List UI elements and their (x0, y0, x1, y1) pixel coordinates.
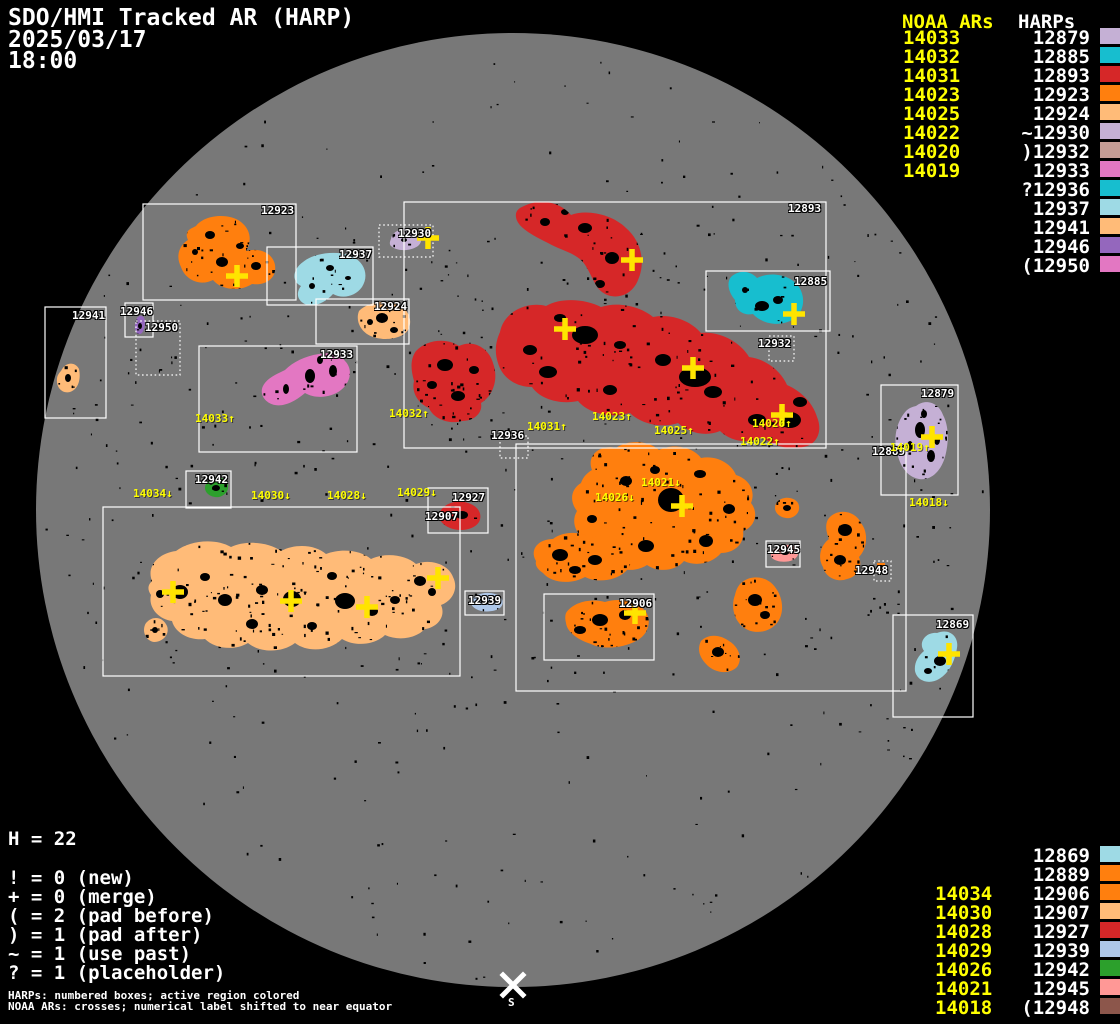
solar-disk (36, 33, 990, 987)
legend-swatch-12879 (1100, 28, 1120, 44)
harp-box-label-12930: 12930 (398, 227, 431, 240)
legend-swatch-12942 (1100, 960, 1120, 976)
noaa-ar-label-14018: 14018↓ (909, 496, 949, 509)
noaa-ar-label-14028: 14028↓ (327, 489, 367, 502)
legend-swatch-12933 (1100, 161, 1120, 177)
legend-swatch-12939 (1100, 941, 1120, 957)
legend-noaa-14019: 14019 (903, 160, 960, 182)
harp-box-label-12893: 12893 (788, 202, 821, 215)
legend-swatch-12948 (1100, 998, 1120, 1014)
harp-box-label-12927: 12927 (452, 491, 485, 504)
plot-time: 18:00 (8, 48, 77, 74)
legend-swatch-12889 (1100, 865, 1120, 881)
south-pole-label: S (508, 996, 515, 1009)
harp-count: H = 22 (8, 828, 77, 850)
legend-swatch-12945 (1100, 979, 1120, 995)
harp-box-label-12869: 12869 (936, 618, 969, 631)
legend-swatch-12893 (1100, 66, 1120, 82)
harp-box-label-12945: 12945 (767, 543, 800, 556)
footnote-noaa: NOAA ARs: crosses; numerical label shift… (8, 1000, 392, 1013)
legend-swatch-12932 (1100, 142, 1120, 158)
noaa-ar-label-14021: 14021↓ (641, 476, 681, 489)
harp-box-label-12941: 12941 (72, 309, 105, 322)
noaa-ar-label-14034: 14034↓ (133, 487, 173, 500)
harp-tracking-figure: SDO/HMI Tracked AR (HARP) 2025/03/17 18:… (0, 0, 1120, 1024)
noaa-ar-label-14026: 14026↓ (595, 491, 635, 504)
harp-box-label-12924: 12924 (374, 300, 407, 313)
legend-swatch-12907 (1100, 903, 1120, 919)
harp-box-label-12907: 12907 (425, 510, 458, 523)
noaa-ar-label-14029: 14029↓ (397, 486, 437, 499)
legend-swatch-12937 (1100, 199, 1120, 215)
legend-swatch-12930 (1100, 123, 1120, 139)
noaa-ar-label-14023: 14023↑ (592, 410, 632, 423)
noaa-ar-label-14030: 14030↓ (251, 489, 291, 502)
harp-box-label-12937: 12937 (339, 248, 372, 261)
harp-box-label-12948: 12948 (855, 564, 888, 577)
legend-noaa-14018: 14018 (935, 997, 992, 1019)
harp-box-label-12933: 12933 (320, 348, 353, 361)
legend-harp-12948: (12948 (990, 997, 1090, 1019)
harp-box-label-12946: 12946 (120, 305, 153, 318)
legend-swatch-12946 (1100, 237, 1120, 253)
harp-region-12889 (534, 533, 631, 582)
noaa-ar-label-14019: 14019↑ (890, 441, 930, 454)
noaa-ar-label-14033: 14033↑ (195, 412, 235, 425)
harp-box-label-12879: 12879 (921, 387, 954, 400)
legend-swatch-12924 (1100, 104, 1120, 120)
legend-swatch-12923 (1100, 85, 1120, 101)
legend-swatch-12936 (1100, 180, 1120, 196)
harp-box-label-12936: 12936 (491, 429, 524, 442)
noaa-ar-label-14020: 14020↑ (752, 417, 792, 430)
noaa-ar-label-14025: 14025↑ (654, 424, 694, 437)
harp-box-label-12950: 12950 (145, 321, 178, 334)
legend-swatch-12941 (1100, 218, 1120, 234)
legend-swatch-12927 (1100, 922, 1120, 938)
harp-box-label-12906: 12906 (619, 597, 652, 610)
noaa-ar-label-14022: 14022↑ (740, 435, 780, 448)
harp-box-label-12932: 12932 (758, 337, 791, 350)
legend-swatch-12950 (1100, 256, 1120, 272)
noaa-ar-label-14031: 14031↑ (527, 420, 567, 433)
harp-box-label-12942: 12942 (195, 473, 228, 486)
symbol-legend-line: ? = 1 (placeholder) (8, 962, 225, 984)
legend-swatch-12869 (1100, 846, 1120, 862)
harp-box-label-12923: 12923 (261, 204, 294, 217)
legend-swatch-12906 (1100, 884, 1120, 900)
legend-harp-12950: (12950 (990, 255, 1090, 277)
noaa-ar-label-14032: 14032↑ (389, 407, 429, 420)
harp-box-label-12885: 12885 (794, 275, 827, 288)
harp-box-label-12939: 12939 (468, 594, 501, 607)
legend-swatch-12885 (1100, 47, 1120, 63)
